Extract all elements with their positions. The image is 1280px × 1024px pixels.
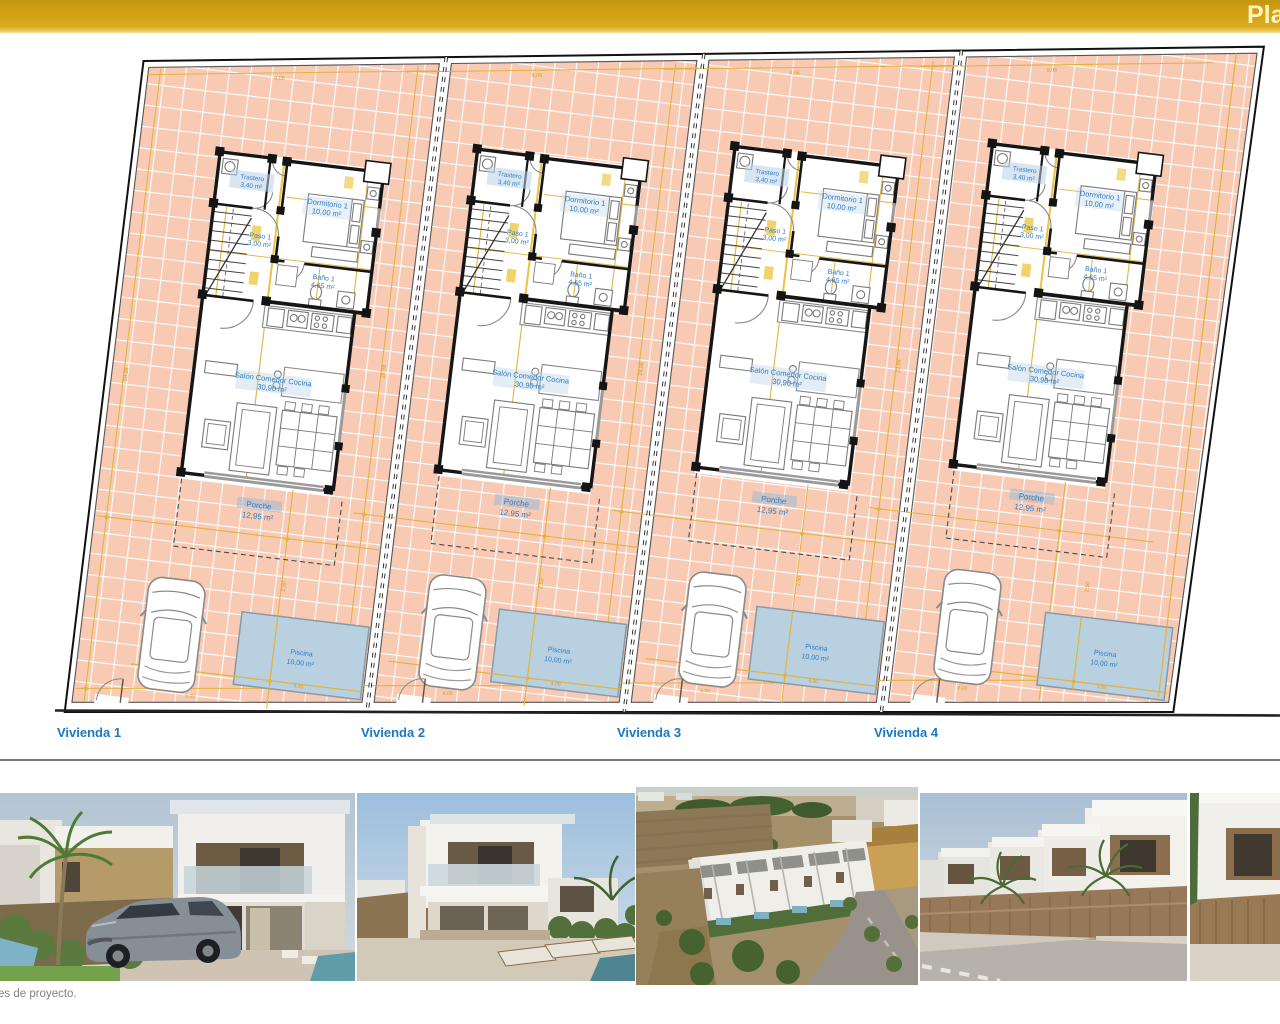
svg-text:es de proyecto.: es de proyecto.	[0, 988, 77, 1000]
svg-text:Vivienda 3: Vivienda 3	[617, 725, 681, 740]
svg-text:Vivienda 2: Vivienda 2	[361, 725, 425, 740]
svg-text:Vivienda 1: Vivienda 1	[57, 725, 121, 740]
svg-text:Vivienda 4: Vivienda 4	[874, 725, 939, 740]
